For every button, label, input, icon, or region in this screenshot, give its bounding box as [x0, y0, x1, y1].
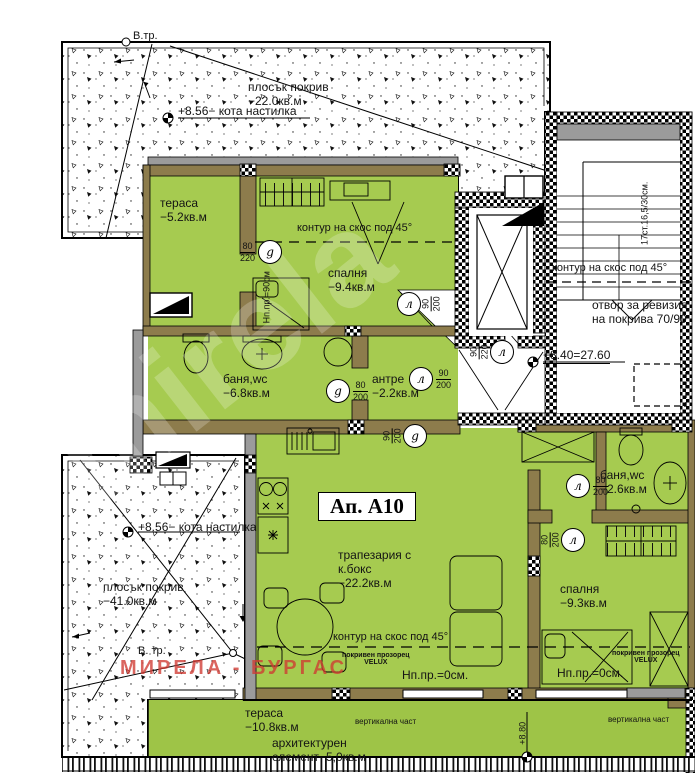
- living-label: трапезария с к.бокс −22.2кв.м: [338, 548, 411, 590]
- apartment-id: Ап. А10: [318, 492, 416, 521]
- agency-watermark: МИРЕЛА - БУРГАС: [120, 657, 347, 680]
- bath-main-label: баня,wc −6.8кв.м: [223, 372, 270, 400]
- elevator-shaft: [469, 208, 533, 336]
- roof-bottom-label: плосък покрив −41.0кв.м: [103, 580, 184, 608]
- downpipe-label-top: В.тр.: [133, 30, 158, 43]
- level-roof-bottom: +8.56− кота настилка: [138, 520, 257, 534]
- velux-note-right: покривен прозорец VELUX: [612, 650, 680, 665]
- door-entrance: л 90 200: [409, 367, 451, 391]
- level-roof-top: +8.56− кота настилка: [178, 104, 297, 118]
- sill-zero-right: Нп.пр.=0см.: [557, 666, 623, 680]
- terrace-bottom-label: тераса −10.8кв.м: [245, 706, 299, 734]
- door-circle: л: [397, 292, 421, 316]
- door-circle: л: [409, 367, 433, 391]
- slope-note-bedroom: контур на скос под 45°: [297, 222, 412, 235]
- bedroom-right-label: спалня −9.3кв.м: [560, 582, 607, 610]
- velux-note-left: покривен прозорец VELUX: [342, 652, 410, 667]
- vertical-part-right: вертикална част: [608, 715, 669, 724]
- sill-zero-left: Нп.пр.=0см.: [402, 668, 468, 682]
- level-landing: +8.40=27.60: [543, 348, 610, 364]
- bedroom-top-label: спалня −9.4кв.м: [328, 266, 375, 294]
- slope-note-bottom: контур на скос под 45°: [333, 631, 448, 644]
- door-bath-small: л 80 200: [566, 474, 608, 498]
- door-bath-main: g 80 200: [326, 379, 368, 403]
- door-bedroom-top: л 90 200: [397, 292, 439, 316]
- terrace-top-label: тераса −5.2кв.м: [160, 196, 207, 224]
- floor-plan: mirela плосък покрив −22.0кв.м +8.56− ко…: [0, 0, 695, 773]
- door-circle: л: [490, 340, 514, 364]
- door-circle: g: [258, 240, 282, 264]
- arch-element-label: архитектурен елемент−5,0кв.м: [272, 736, 366, 764]
- door-circle: л: [561, 528, 585, 552]
- stairs-note: 17ст.16,5/30см.: [640, 163, 651, 263]
- door-elevator: 90 220 л: [472, 340, 514, 364]
- roof-revision-note: отвор за ревизия на покрива 70/90: [592, 298, 688, 327]
- door-terrace-bedroom: 80 220 g: [240, 240, 282, 264]
- slope-note-stairs: контур на скос под 45°: [552, 262, 667, 275]
- door-circle: g: [326, 379, 350, 403]
- door-hall-living: 90 200 g: [385, 424, 427, 448]
- level-terrace: +8.80: [518, 710, 529, 756]
- door-circle: л: [566, 474, 590, 498]
- door-bedroom-right: 80 200 л: [543, 528, 585, 552]
- sill-height-90: Нп.пр.=90см: [262, 252, 273, 342]
- door-circle: g: [403, 424, 427, 448]
- vertical-part-left: вертикална част: [355, 717, 416, 726]
